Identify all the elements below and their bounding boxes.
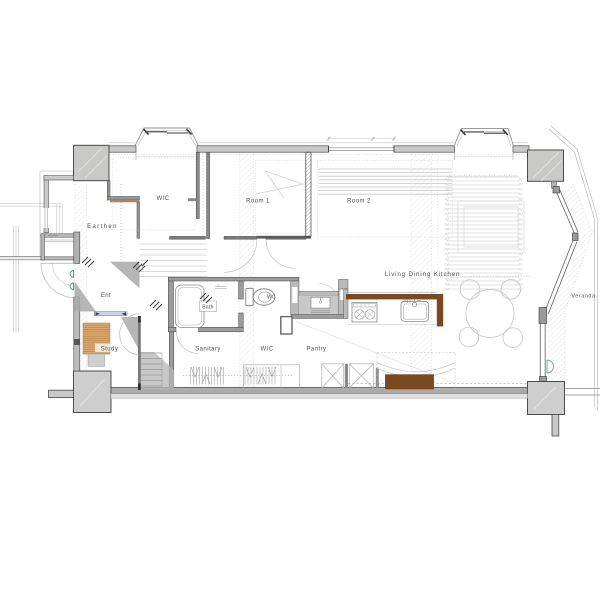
svg-text:Living Dining Kitchen: Living Dining Kitchen bbox=[385, 271, 461, 278]
svg-text:Bath: Bath bbox=[202, 304, 214, 310]
svg-text:Sanitary: Sanitary bbox=[195, 347, 221, 353]
svg-text:Pantry: Pantry bbox=[306, 347, 326, 353]
svg-text:Veranda: Veranda bbox=[571, 294, 595, 300]
svg-text:Earthen: Earthen bbox=[87, 224, 118, 230]
svg-text:Room 1: Room 1 bbox=[246, 198, 270, 204]
svg-text:Room 2: Room 2 bbox=[347, 198, 371, 204]
svg-text:WC: WC bbox=[267, 294, 276, 300]
svg-text:WIC: WIC bbox=[260, 347, 273, 353]
svg-text:Study: Study bbox=[101, 347, 119, 353]
svg-text:Ent: Ent bbox=[101, 293, 111, 299]
svg-text:WIC: WIC bbox=[156, 196, 169, 202]
